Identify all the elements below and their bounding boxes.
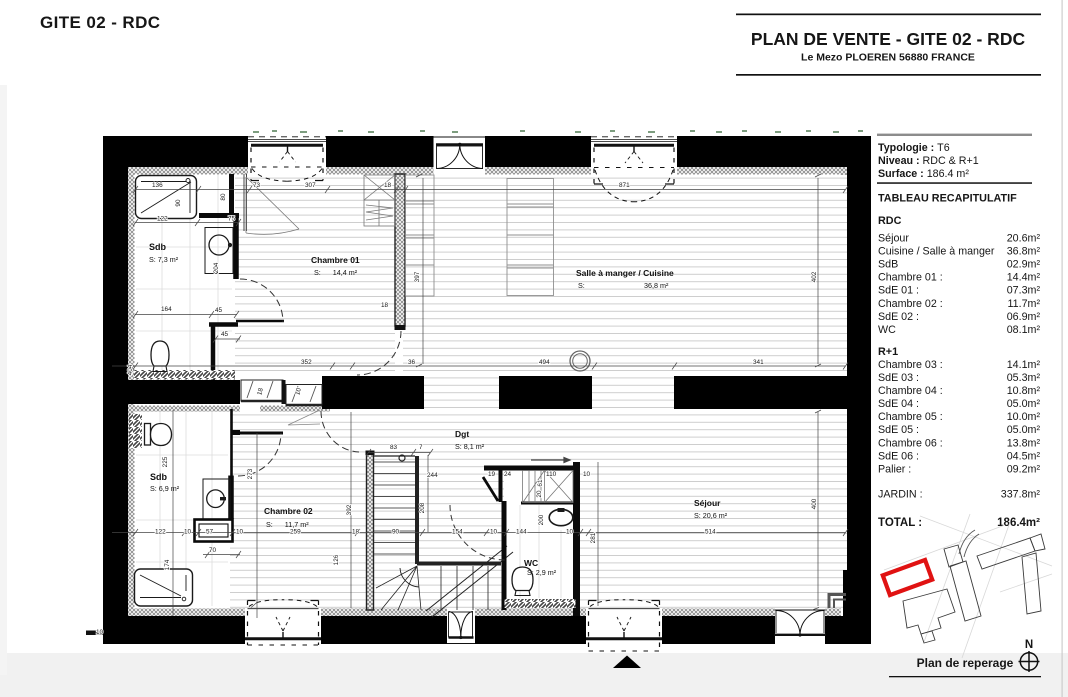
svg-text:Surface : 186.4 m²: Surface : 186.4 m² [878, 168, 969, 180]
svg-text:07.3m²: 07.3m² [1007, 285, 1041, 297]
svg-text:122: 122 [157, 216, 168, 223]
svg-text:N: N [1025, 639, 1033, 651]
svg-text:19: 19 [488, 471, 496, 478]
svg-text:400: 400 [811, 498, 818, 509]
svg-text:Chambre 05 :: Chambre 05 : [878, 411, 943, 423]
svg-text:04.5m²: 04.5m² [1007, 450, 1041, 462]
svg-text:Chambre 06 :: Chambre 06 : [878, 437, 943, 449]
svg-text:Chambre 01 :: Chambre 01 : [878, 272, 943, 284]
svg-text:R+1: R+1 [878, 346, 898, 358]
svg-text:136: 136 [152, 182, 163, 189]
svg-text:PLAN DE VENTE - GITE 02 - RDC: PLAN DE VENTE - GITE 02 - RDC [751, 29, 1026, 49]
svg-text:392: 392 [346, 504, 353, 515]
svg-text:154: 154 [452, 529, 463, 536]
svg-text:SdE 04 :: SdE 04 : [878, 398, 919, 410]
svg-text:20: 20 [536, 490, 543, 498]
svg-text:397: 397 [414, 271, 421, 282]
svg-text:10: 10 [490, 529, 498, 536]
svg-text:244: 244 [427, 472, 438, 479]
svg-text:126: 126 [333, 554, 340, 565]
svg-text:TOTAL :: TOTAL : [878, 517, 922, 529]
svg-text:Palier :: Palier : [878, 463, 911, 475]
svg-text:Cuisine / Salle à manger: Cuisine / Salle à manger [878, 246, 995, 258]
svg-text:S: 8,1 m²: S: 8,1 m² [455, 442, 485, 451]
svg-text:WC: WC [878, 324, 896, 336]
svg-text:90: 90 [392, 529, 400, 536]
svg-text:341: 341 [753, 359, 764, 366]
svg-text:SdE 01 :: SdE 01 : [878, 285, 919, 297]
svg-text:45: 45 [221, 331, 229, 338]
svg-text:10.8m²: 10.8m² [1007, 385, 1041, 397]
svg-text:70: 70 [209, 547, 217, 554]
svg-text:05.3m²: 05.3m² [1007, 372, 1041, 384]
svg-text:S: 7,3 m²: S: 7,3 m² [149, 255, 179, 264]
svg-text:WC: WC [524, 558, 538, 568]
svg-text:122: 122 [155, 529, 166, 536]
svg-text:402: 402 [811, 271, 818, 282]
svg-text:83: 83 [390, 444, 398, 451]
svg-text:02.9m²: 02.9m² [1007, 259, 1041, 271]
svg-text:225: 225 [162, 456, 169, 467]
svg-text:20.6m²: 20.6m² [1007, 233, 1041, 245]
svg-text:24: 24 [504, 471, 512, 478]
svg-text:SdE 05 :: SdE 05 : [878, 424, 919, 436]
svg-text:RDC: RDC [878, 215, 902, 227]
svg-text:186.4m²: 186.4m² [997, 517, 1040, 529]
svg-text:7: 7 [419, 444, 423, 451]
svg-text:18: 18 [384, 182, 392, 189]
svg-text:SdE 03 :: SdE 03 : [878, 372, 919, 384]
svg-text:11.7m²: 11.7m² [1008, 298, 1041, 310]
svg-text:259: 259 [290, 529, 301, 536]
svg-text:281: 281 [590, 532, 597, 543]
svg-text:90: 90 [175, 199, 182, 207]
svg-text:10: 10 [96, 629, 104, 636]
svg-text:352: 352 [301, 359, 312, 366]
svg-text:494: 494 [539, 359, 550, 366]
svg-text:45: 45 [215, 307, 223, 314]
svg-text:Plan de reperage: Plan de reperage [917, 656, 1014, 670]
svg-text:Dgt: Dgt [455, 429, 469, 439]
svg-text:Typologie : T6: Typologie : T6 [878, 142, 950, 154]
svg-text:09.2m²: 09.2m² [1007, 463, 1041, 475]
svg-text:SdE 06 :: SdE 06 : [878, 450, 919, 462]
svg-text:75: 75 [228, 216, 236, 223]
svg-text:05.0m²: 05.0m² [1007, 424, 1041, 436]
svg-text:SdB: SdB [878, 259, 898, 271]
svg-text:208: 208 [419, 502, 426, 513]
svg-text:Chambre 01: Chambre 01 [311, 255, 360, 265]
svg-text:SdE 02 :: SdE 02 : [878, 311, 919, 323]
svg-text:S: 20,6 m²: S: 20,6 m² [694, 511, 728, 520]
svg-text:06.9m²: 06.9m² [1007, 311, 1041, 323]
svg-text:Séjour: Séjour [878, 233, 909, 245]
svg-text:110: 110 [546, 471, 557, 478]
svg-text:514: 514 [705, 529, 716, 536]
svg-text:200: 200 [538, 514, 545, 525]
svg-text:307: 307 [305, 182, 316, 189]
svg-text:61: 61 [537, 479, 544, 487]
svg-text:08.1m²: 08.1m² [1007, 324, 1041, 336]
svg-text:Chambre 02: Chambre 02 [264, 506, 313, 516]
svg-text:204: 204 [213, 262, 220, 273]
svg-text:05.0m²: 05.0m² [1007, 398, 1041, 410]
svg-text:14.4m²: 14.4m² [1007, 272, 1041, 284]
svg-text:GITE 02 - RDC: GITE 02 - RDC [40, 13, 160, 32]
svg-text:871: 871 [619, 182, 630, 189]
svg-text:10: 10 [583, 471, 591, 478]
svg-text:174: 174 [164, 559, 171, 570]
svg-text:80: 80 [220, 193, 227, 201]
svg-text:Chambre 04 :: Chambre 04 : [878, 385, 943, 397]
svg-text:S: 6,9 m²: S: 6,9 m² [150, 484, 180, 493]
svg-text:S: 11,7 m²: S: 11,7 m² [266, 520, 309, 529]
svg-text:13.8m²: 13.8m² [1007, 437, 1041, 449]
svg-text:Chambre 03 :: Chambre 03 : [878, 359, 943, 371]
svg-text:Sdb: Sdb [150, 472, 168, 482]
svg-text:36.8m²: 36.8m² [1007, 246, 1041, 258]
svg-text:Niveau : RDC & R+1: Niveau : RDC & R+1 [878, 155, 979, 167]
svg-text:404: 404 [127, 364, 134, 375]
svg-text:337.8m²: 337.8m² [1001, 489, 1041, 501]
svg-text:Le Mezo PLOEREN 56880 FRANCE: Le Mezo PLOEREN 56880 FRANCE [801, 52, 975, 64]
svg-text:S: 2,9 m²: S: 2,9 m² [527, 568, 557, 577]
svg-text:164: 164 [161, 306, 172, 313]
svg-text:73: 73 [253, 182, 261, 189]
svg-text:10: 10 [236, 529, 244, 536]
svg-text:S: 14,4 m²: S: 14,4 m² [314, 268, 358, 277]
svg-text:Séjour: Séjour [694, 498, 721, 508]
svg-text:36: 36 [408, 359, 416, 366]
svg-text:10: 10 [566, 529, 574, 536]
svg-text:JARDIN :: JARDIN : [878, 489, 923, 501]
svg-text:57: 57 [206, 529, 214, 536]
svg-text:18: 18 [352, 529, 360, 536]
svg-text:18: 18 [381, 302, 389, 309]
svg-text:144: 144 [516, 529, 527, 536]
svg-text:10.0m²: 10.0m² [1007, 411, 1041, 423]
svg-text:Sdb: Sdb [149, 242, 167, 252]
svg-text:14.1m²: 14.1m² [1007, 359, 1041, 371]
svg-text:TABLEAU RECAPITULATIF: TABLEAU RECAPITULATIF [878, 193, 1017, 205]
svg-text:10: 10 [184, 529, 192, 536]
svg-text:Salle à manger / Cuisine: Salle à manger / Cuisine [576, 268, 674, 278]
svg-text:273: 273 [247, 468, 254, 479]
svg-text:Chambre 02 :: Chambre 02 : [878, 298, 943, 310]
